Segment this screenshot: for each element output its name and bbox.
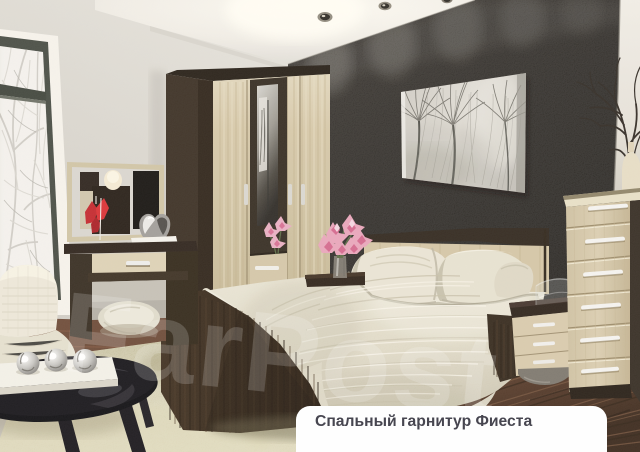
svg-text:Спальный гарнитур Фиеста: Спальный гарнитур Фиеста (315, 413, 532, 430)
